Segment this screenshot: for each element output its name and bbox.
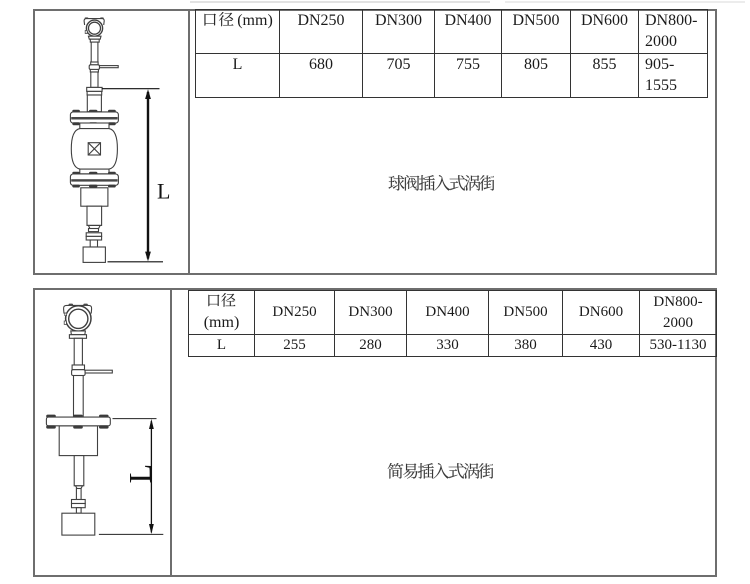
- svg-text:L: L: [157, 178, 170, 203]
- svg-text:L: L: [122, 464, 158, 484]
